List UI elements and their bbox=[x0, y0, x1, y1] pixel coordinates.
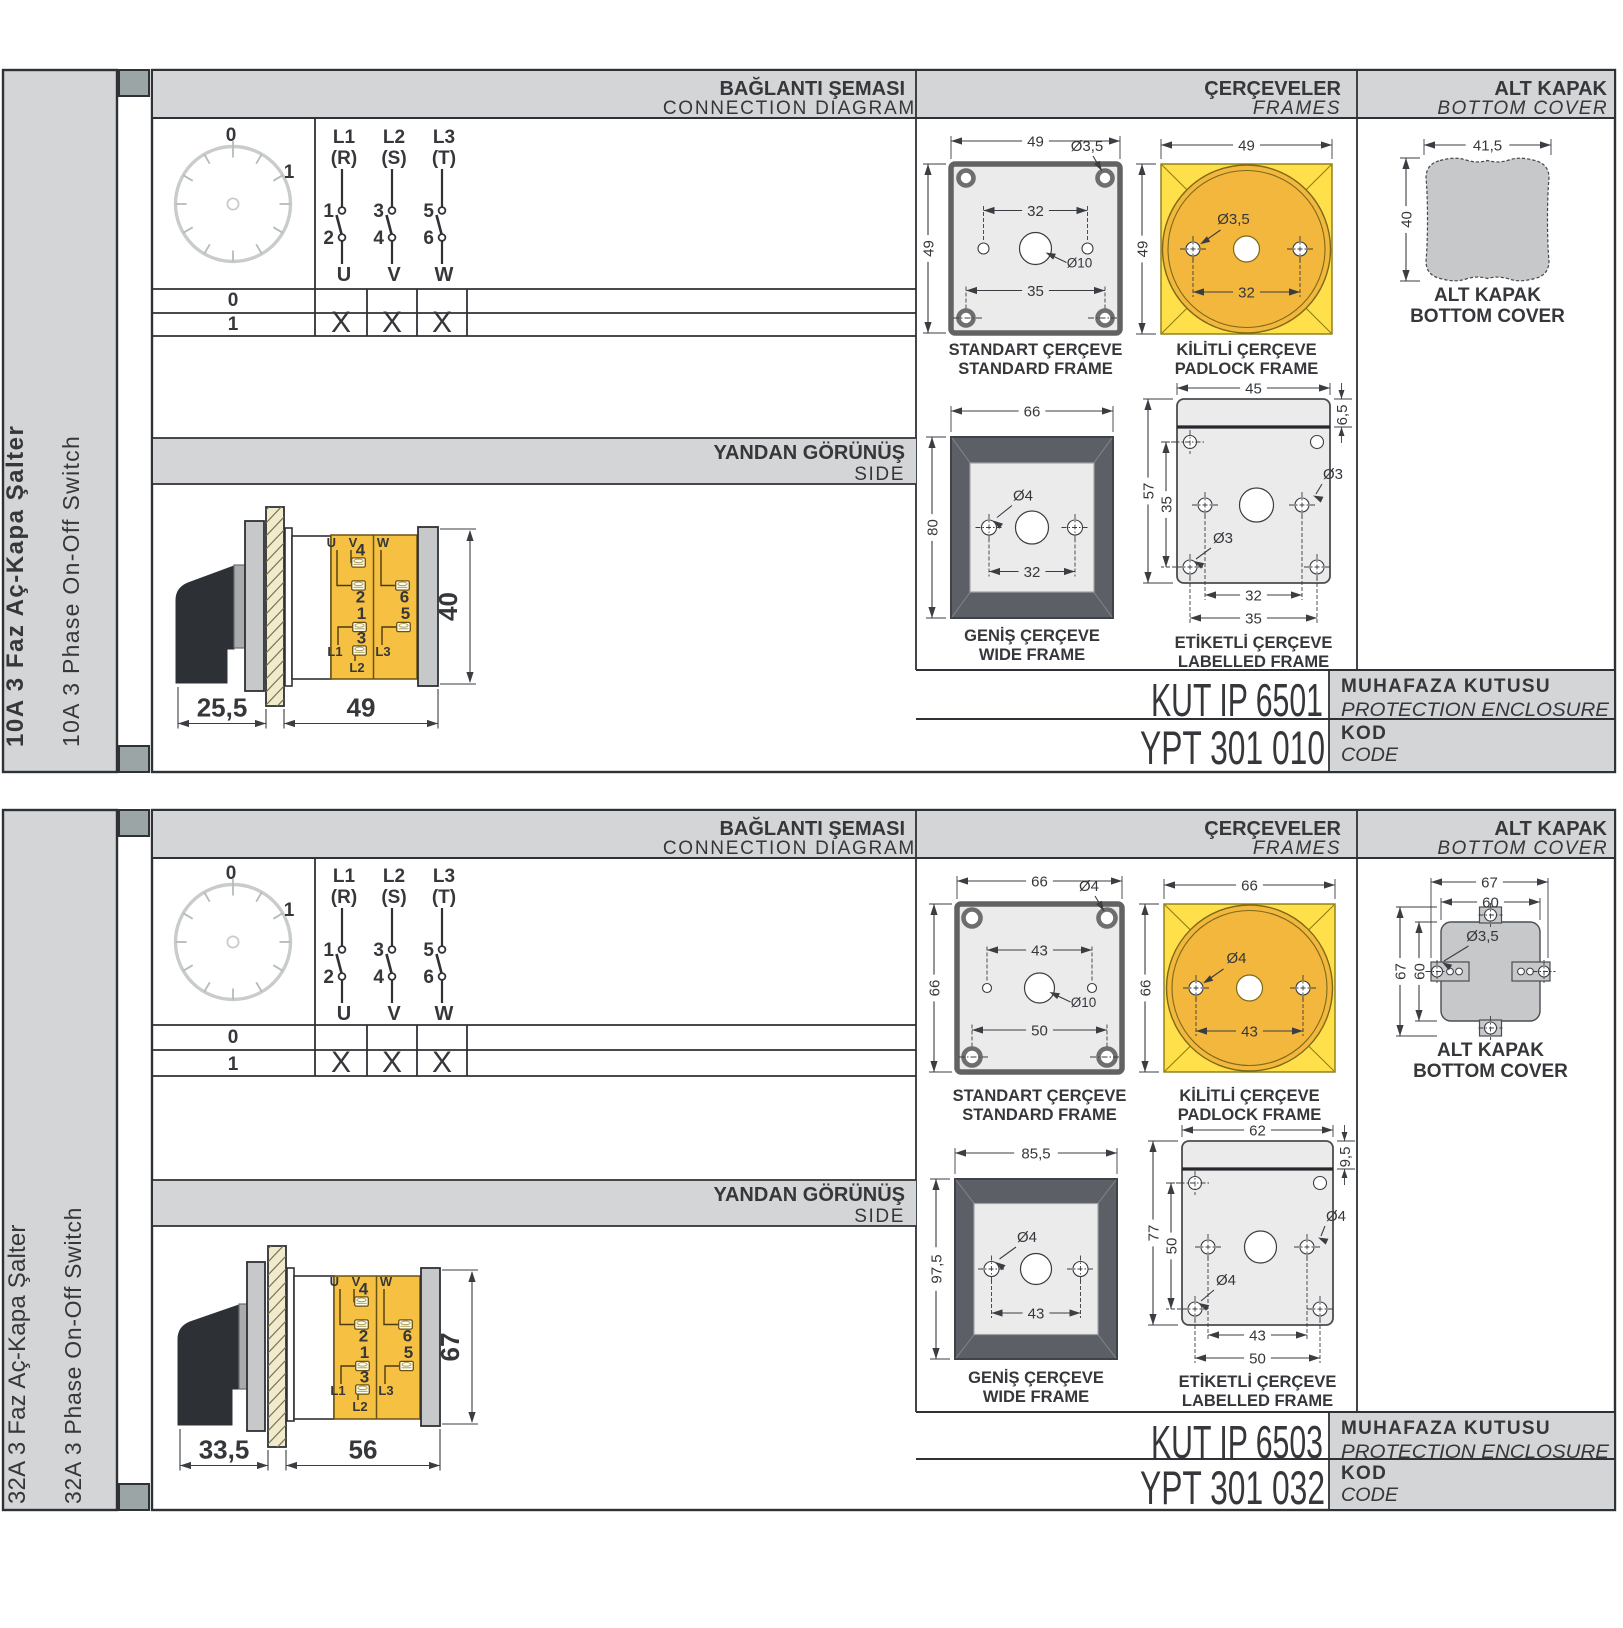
svg-text:L1: L1 bbox=[333, 127, 356, 148]
svg-text:YANDAN GÖRÜNÜŞ: YANDAN GÖRÜNÜŞ bbox=[713, 1183, 905, 1206]
svg-text:2: 2 bbox=[323, 967, 334, 988]
svg-text:40: 40 bbox=[1398, 211, 1415, 228]
svg-text:L3: L3 bbox=[375, 644, 390, 659]
svg-text:ÇERÇEVELER: ÇERÇEVELER bbox=[1204, 818, 1341, 840]
svg-text:41,5: 41,5 bbox=[1473, 137, 1502, 154]
svg-text:32: 32 bbox=[1024, 564, 1041, 581]
svg-text:U: U bbox=[327, 535, 336, 550]
svg-text:3: 3 bbox=[357, 629, 366, 648]
svg-text:3: 3 bbox=[373, 201, 384, 222]
svg-text:6,5: 6,5 bbox=[1334, 405, 1351, 426]
svg-text:35: 35 bbox=[1158, 496, 1175, 513]
svg-text:0: 0 bbox=[228, 1027, 239, 1048]
svg-text:ALT KAPAK: ALT KAPAK bbox=[1494, 78, 1607, 100]
svg-text:YANDAN GÖRÜNÜŞ: YANDAN GÖRÜNÜŞ bbox=[713, 441, 905, 464]
svg-text:97,5: 97,5 bbox=[928, 1254, 945, 1283]
svg-text:66: 66 bbox=[1031, 873, 1048, 890]
svg-text:STANDARD FRAME: STANDARD FRAME bbox=[962, 1106, 1117, 1124]
svg-text:32A 3 Phase On-Off Switch: 32A 3 Phase On-Off Switch bbox=[60, 1207, 86, 1504]
svg-text:KİLİTLİ ÇERÇEVE: KİLİTLİ ÇERÇEVE bbox=[1179, 1087, 1319, 1105]
svg-text:Ø3: Ø3 bbox=[1323, 466, 1343, 483]
svg-text:(T): (T) bbox=[432, 148, 456, 169]
svg-text:67: 67 bbox=[1481, 874, 1498, 891]
svg-text:Ø3,5: Ø3,5 bbox=[1217, 211, 1250, 228]
svg-text:1: 1 bbox=[284, 900, 295, 921]
svg-text:PADLOCK FRAME: PADLOCK FRAME bbox=[1178, 1106, 1322, 1124]
svg-text:L2: L2 bbox=[383, 127, 405, 148]
svg-text:45: 45 bbox=[1245, 380, 1262, 397]
svg-text:ALT KAPAK: ALT KAPAK bbox=[1434, 285, 1541, 306]
svg-text:6: 6 bbox=[423, 967, 434, 988]
svg-text:Ø3,5: Ø3,5 bbox=[1071, 138, 1104, 155]
svg-text:50: 50 bbox=[1249, 1350, 1266, 1367]
svg-text:66: 66 bbox=[926, 980, 943, 997]
svg-text:32: 32 bbox=[1027, 203, 1044, 220]
svg-text:WIDE FRAME: WIDE FRAME bbox=[979, 646, 1085, 664]
svg-text:4: 4 bbox=[356, 541, 366, 560]
svg-text:ALT KAPAK: ALT KAPAK bbox=[1494, 818, 1607, 840]
svg-text:43: 43 bbox=[1031, 942, 1048, 959]
svg-text:(S): (S) bbox=[381, 148, 406, 169]
svg-text:(R): (R) bbox=[331, 887, 357, 908]
svg-text:PADLOCK FRAME: PADLOCK FRAME bbox=[1175, 360, 1319, 378]
svg-text:(T): (T) bbox=[432, 887, 456, 908]
svg-text:60: 60 bbox=[1482, 894, 1499, 911]
svg-text:Ø4: Ø4 bbox=[1013, 488, 1033, 505]
svg-text:67: 67 bbox=[1392, 963, 1409, 980]
svg-text:Ø4: Ø4 bbox=[1017, 1229, 1037, 1246]
svg-text:Ø4: Ø4 bbox=[1326, 1208, 1346, 1225]
svg-text:66: 66 bbox=[1137, 980, 1154, 997]
svg-text:PROTECTION ENCLOSURE: PROTECTION ENCLOSURE bbox=[1341, 699, 1610, 721]
svg-text:L1: L1 bbox=[330, 1383, 345, 1398]
svg-text:L2: L2 bbox=[383, 866, 405, 887]
svg-text:KOD: KOD bbox=[1341, 1463, 1387, 1484]
svg-text:2: 2 bbox=[323, 228, 334, 249]
svg-text:SIDE: SIDE bbox=[854, 464, 905, 485]
svg-text:Ø10: Ø10 bbox=[1071, 995, 1097, 1010]
svg-text:67: 67 bbox=[435, 1333, 465, 1362]
svg-text:43: 43 bbox=[1249, 1327, 1266, 1344]
svg-text:FRAMES: FRAMES bbox=[1253, 838, 1341, 859]
svg-text:U: U bbox=[337, 1003, 351, 1025]
svg-text:85,5: 85,5 bbox=[1021, 1145, 1050, 1162]
svg-text:49: 49 bbox=[347, 693, 376, 723]
svg-text:43: 43 bbox=[1028, 1305, 1045, 1322]
svg-text:Ø3: Ø3 bbox=[1213, 530, 1233, 547]
svg-text:0: 0 bbox=[228, 290, 239, 311]
svg-text:SIDE: SIDE bbox=[854, 1206, 905, 1227]
svg-text:6: 6 bbox=[423, 228, 434, 249]
svg-text:ETİKETLİ ÇERÇEVE: ETİKETLİ ÇERÇEVE bbox=[1179, 1373, 1337, 1391]
svg-text:BOTTOM COVER: BOTTOM COVER bbox=[1437, 838, 1608, 859]
svg-text:49: 49 bbox=[920, 240, 937, 257]
svg-text:56: 56 bbox=[349, 1435, 378, 1465]
svg-text:X: X bbox=[331, 306, 351, 339]
svg-text:5: 5 bbox=[404, 1343, 413, 1362]
svg-text:U: U bbox=[330, 1274, 339, 1289]
svg-text:49: 49 bbox=[1134, 241, 1151, 258]
svg-text:GENİŞ ÇERÇEVE: GENİŞ ÇERÇEVE bbox=[968, 1369, 1104, 1387]
svg-text:Ø10: Ø10 bbox=[1067, 256, 1093, 271]
svg-text:X: X bbox=[382, 1046, 402, 1079]
svg-text:L3: L3 bbox=[378, 1383, 393, 1398]
svg-text:X: X bbox=[432, 306, 452, 339]
svg-text:L1: L1 bbox=[327, 644, 342, 659]
svg-text:32: 32 bbox=[1245, 587, 1262, 604]
svg-text:LABELLED FRAME: LABELLED FRAME bbox=[1182, 1392, 1333, 1410]
svg-text:KİLİTLİ ÇERÇEVE: KİLİTLİ ÇERÇEVE bbox=[1176, 341, 1316, 359]
svg-text:0: 0 bbox=[226, 125, 237, 146]
svg-text:X: X bbox=[432, 1046, 452, 1079]
svg-text:Ø4: Ø4 bbox=[1226, 950, 1246, 967]
svg-text:Ø4: Ø4 bbox=[1216, 1272, 1236, 1289]
svg-text:33,5: 33,5 bbox=[199, 1435, 250, 1465]
svg-text:57: 57 bbox=[1140, 483, 1157, 500]
svg-text:1: 1 bbox=[228, 314, 239, 335]
svg-text:1: 1 bbox=[323, 940, 334, 961]
svg-text:STANDART ÇERÇEVE: STANDART ÇERÇEVE bbox=[949, 341, 1123, 359]
svg-text:5: 5 bbox=[423, 201, 434, 222]
svg-text:W: W bbox=[377, 535, 390, 550]
svg-text:10A 3 Phase On-Off Switch: 10A 3 Phase On-Off Switch bbox=[58, 435, 84, 747]
svg-text:BOTTOM COVER: BOTTOM COVER bbox=[1437, 98, 1608, 119]
svg-text:3: 3 bbox=[360, 1368, 369, 1387]
svg-text:(S): (S) bbox=[381, 887, 406, 908]
svg-text:66: 66 bbox=[1241, 877, 1258, 894]
svg-text:BOTTOM COVER: BOTTOM COVER bbox=[1410, 306, 1565, 327]
svg-text:L1: L1 bbox=[333, 866, 356, 887]
svg-text:40: 40 bbox=[433, 592, 463, 621]
svg-text:CONNECTION DIAGRAM: CONNECTION DIAGRAM bbox=[663, 98, 916, 119]
svg-text:Ø4: Ø4 bbox=[1079, 878, 1099, 895]
svg-text:YPT 301 032: YPT 301 032 bbox=[1140, 1461, 1325, 1514]
svg-text:9,5: 9,5 bbox=[1337, 1147, 1354, 1168]
svg-text:STANDARD FRAME: STANDARD FRAME bbox=[958, 360, 1113, 378]
svg-text:L2: L2 bbox=[352, 1399, 367, 1414]
svg-text:L3: L3 bbox=[433, 127, 455, 148]
svg-text:GENİŞ ÇERÇEVE: GENİŞ ÇERÇEVE bbox=[964, 627, 1100, 645]
svg-text:MUHAFAZA KUTUSU: MUHAFAZA KUTUSU bbox=[1341, 1418, 1551, 1439]
svg-text:L3: L3 bbox=[433, 866, 455, 887]
svg-text:ÇERÇEVELER: ÇERÇEVELER bbox=[1204, 78, 1341, 100]
svg-text:3: 3 bbox=[373, 940, 384, 961]
svg-text:W: W bbox=[380, 1274, 393, 1289]
svg-text:50: 50 bbox=[1163, 1238, 1180, 1255]
svg-text:BAĞLANTI ŞEMASI: BAĞLANTI ŞEMASI bbox=[719, 76, 905, 100]
svg-text:5: 5 bbox=[423, 940, 434, 961]
svg-text:1: 1 bbox=[360, 1343, 369, 1362]
svg-text:FRAMES: FRAMES bbox=[1253, 98, 1341, 119]
svg-text:50: 50 bbox=[1031, 1022, 1048, 1039]
svg-text:BOTTOM COVER: BOTTOM COVER bbox=[1413, 1061, 1568, 1082]
svg-text:62: 62 bbox=[1249, 1122, 1266, 1139]
svg-text:CONNECTION DIAGRAM: CONNECTION DIAGRAM bbox=[663, 838, 916, 859]
svg-text:1: 1 bbox=[323, 201, 334, 222]
svg-text:1: 1 bbox=[357, 604, 366, 623]
svg-text:V: V bbox=[387, 1003, 401, 1025]
svg-text:35: 35 bbox=[1027, 283, 1044, 300]
svg-text:KOD: KOD bbox=[1341, 723, 1387, 744]
svg-text:PROTECTION ENCLOSURE: PROTECTION ENCLOSURE bbox=[1341, 1441, 1610, 1463]
svg-text:ETİKETLİ ÇERÇEVE: ETİKETLİ ÇERÇEVE bbox=[1175, 634, 1333, 652]
svg-text:60: 60 bbox=[1411, 963, 1428, 980]
svg-text:LABELLED FRAME: LABELLED FRAME bbox=[1178, 653, 1329, 671]
svg-text:WIDE FRAME: WIDE FRAME bbox=[983, 1388, 1089, 1406]
svg-text:U: U bbox=[337, 264, 351, 286]
svg-text:10A 3 Faz Aç-Kapa Şalter: 10A 3 Faz Aç-Kapa Şalter bbox=[2, 425, 29, 747]
svg-text:Ø3,5: Ø3,5 bbox=[1466, 928, 1499, 945]
svg-text:1: 1 bbox=[228, 1054, 239, 1075]
svg-text:66: 66 bbox=[1024, 403, 1041, 420]
svg-text:YPT 301 010: YPT 301 010 bbox=[1140, 721, 1325, 774]
svg-text:KUT IP 6501: KUT IP 6501 bbox=[1151, 674, 1323, 726]
svg-text:W: W bbox=[435, 264, 454, 286]
svg-text:1: 1 bbox=[284, 162, 295, 183]
svg-text:CODE: CODE bbox=[1341, 744, 1399, 766]
svg-text:ALT KAPAK: ALT KAPAK bbox=[1437, 1040, 1544, 1061]
svg-text:77: 77 bbox=[1145, 1225, 1162, 1242]
svg-text:V: V bbox=[387, 264, 401, 286]
svg-text:(R): (R) bbox=[331, 148, 357, 169]
svg-text:25,5: 25,5 bbox=[197, 693, 248, 723]
svg-text:BAĞLANTI ŞEMASI: BAĞLANTI ŞEMASI bbox=[719, 816, 905, 840]
svg-text:X: X bbox=[331, 1046, 351, 1079]
svg-text:STANDART ÇERÇEVE: STANDART ÇERÇEVE bbox=[953, 1087, 1127, 1105]
svg-text:X: X bbox=[382, 306, 402, 339]
svg-text:80: 80 bbox=[924, 519, 941, 536]
svg-text:4: 4 bbox=[359, 1280, 369, 1299]
svg-text:L2: L2 bbox=[349, 660, 364, 675]
svg-text:32: 32 bbox=[1238, 284, 1255, 301]
svg-text:W: W bbox=[435, 1003, 454, 1025]
svg-text:CODE: CODE bbox=[1341, 1484, 1399, 1506]
svg-text:MUHAFAZA KUTUSU: MUHAFAZA KUTUSU bbox=[1341, 676, 1551, 697]
svg-text:49: 49 bbox=[1238, 137, 1255, 154]
svg-text:4: 4 bbox=[373, 228, 384, 249]
svg-text:49: 49 bbox=[1027, 133, 1044, 150]
svg-text:43: 43 bbox=[1241, 1023, 1258, 1040]
svg-text:5: 5 bbox=[401, 604, 410, 623]
svg-text:4: 4 bbox=[373, 967, 384, 988]
svg-text:0: 0 bbox=[226, 863, 237, 884]
svg-text:35: 35 bbox=[1245, 610, 1262, 627]
svg-text:32A 3 Faz Aç-Kapa Şalter: 32A 3 Faz Aç-Kapa Şalter bbox=[4, 1224, 31, 1504]
